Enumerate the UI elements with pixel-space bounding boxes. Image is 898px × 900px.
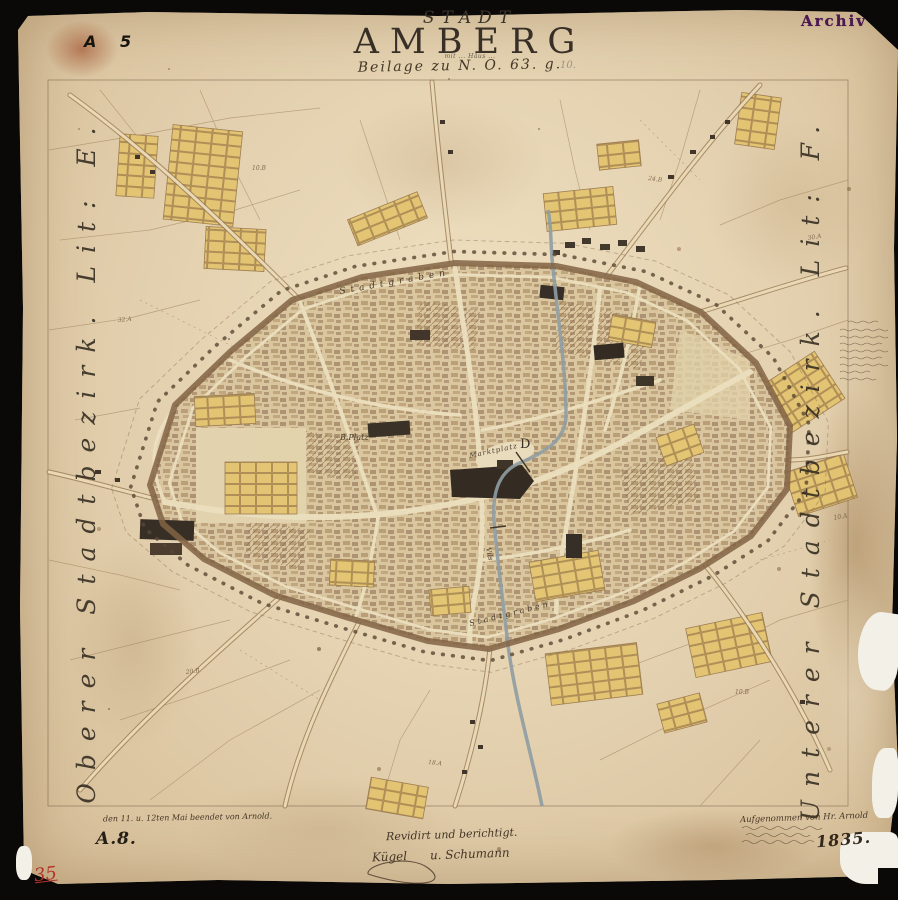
torn-patch	[16, 846, 32, 880]
district-label-left: Oberer Stadtbezirk. Lit: E.	[72, 103, 101, 815]
parcel-label: 20.B	[184, 667, 200, 676]
parcel-label: 10.B	[252, 165, 267, 172]
marginal-note-handwriting	[840, 321, 888, 380]
corner-notch	[878, 868, 898, 900]
parcel-label: 10.B	[735, 689, 750, 696]
scan-background: Stadtgraben Stadtgraben Marktplatz B.Pla…	[0, 0, 898, 900]
survey-note-handwriting	[742, 827, 822, 844]
sheet-number: A 5	[84, 32, 140, 51]
map-drawing: Stadtgraben Stadtgraben Marktplatz B.Pla…	[0, 0, 898, 900]
torn-patch	[872, 748, 898, 818]
district-letter-d: D	[520, 437, 530, 452]
signature-flourish	[368, 861, 435, 883]
parcel-label: 18.A	[428, 759, 443, 767]
parcel-label: 10.A	[833, 513, 849, 522]
pencil-annotation: 10.	[560, 60, 576, 71]
inventory-number: A.8.	[96, 829, 137, 849]
archive-stamp: Archiv	[801, 12, 867, 30]
district-letter-c: C	[512, 467, 522, 482]
b-platz-label: B.Platz	[339, 433, 369, 442]
parcel-label: 32.A	[118, 316, 133, 324]
parcel-label: 24.B	[647, 175, 663, 184]
district-label-right: Unterer Stadtbezirk. Lit: F.	[796, 106, 825, 828]
red-folio-number: 35	[33, 863, 58, 887]
